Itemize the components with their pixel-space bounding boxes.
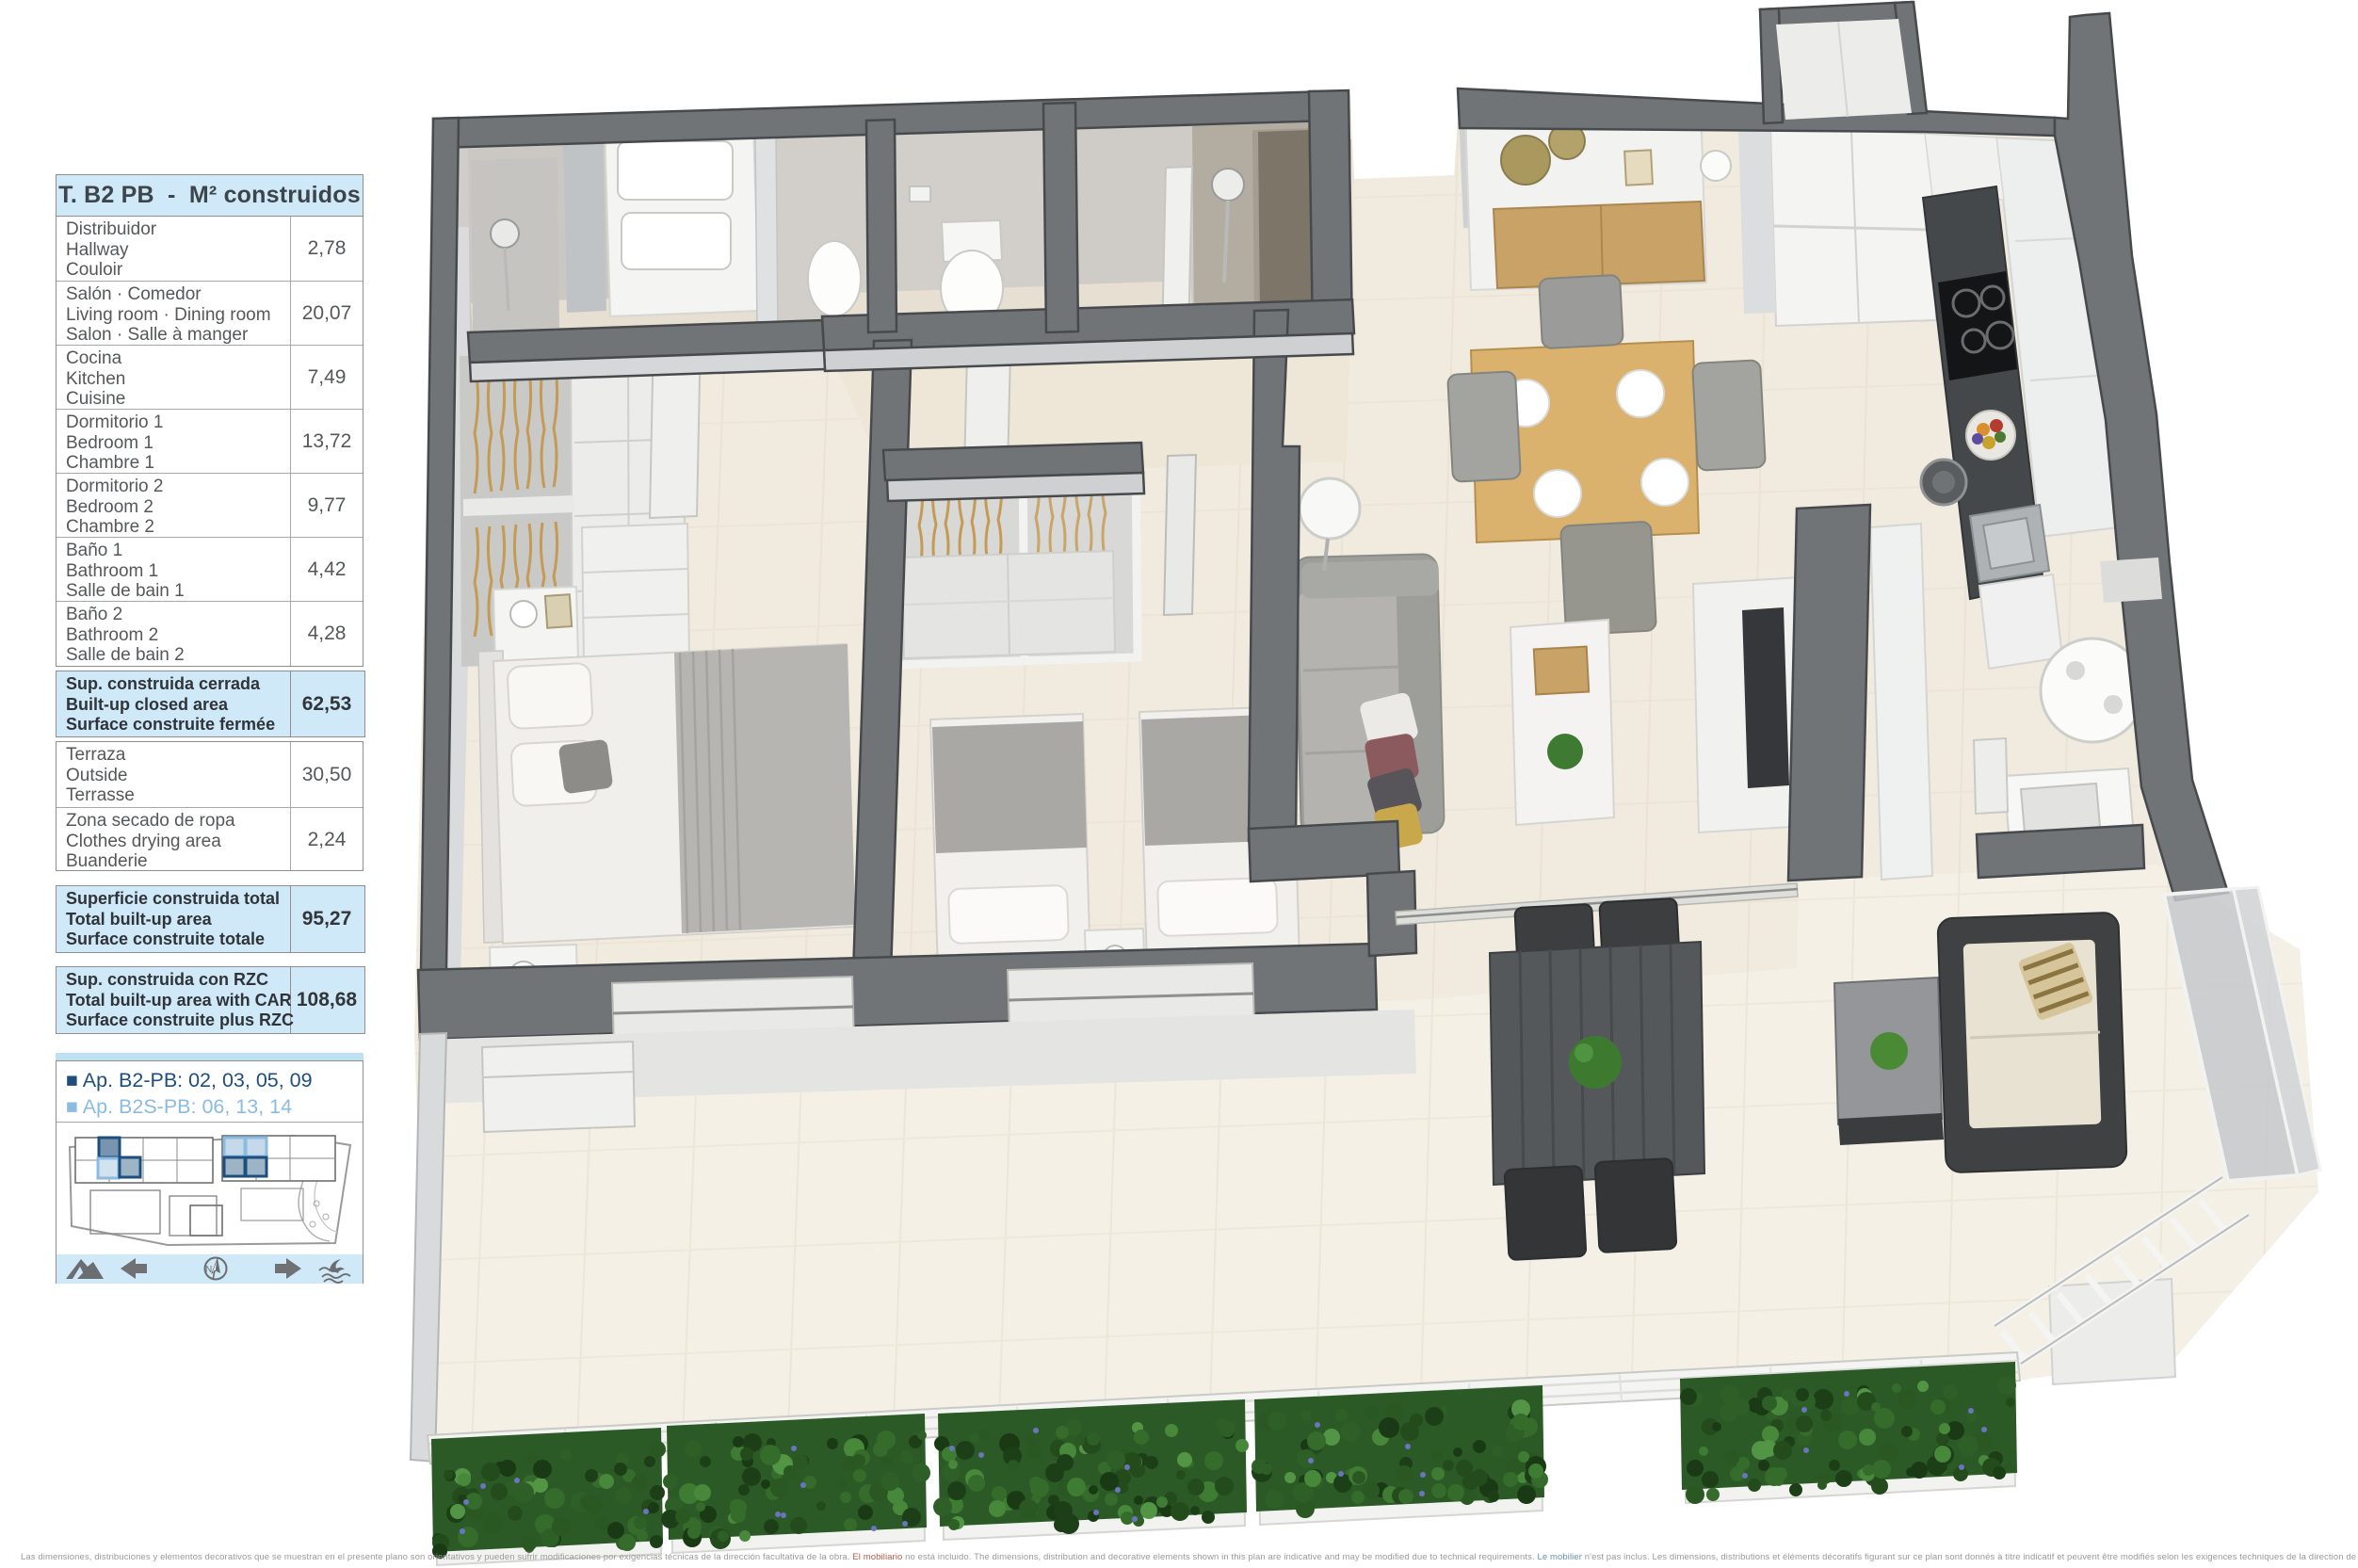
svg-text:N: N — [205, 1265, 212, 1275]
